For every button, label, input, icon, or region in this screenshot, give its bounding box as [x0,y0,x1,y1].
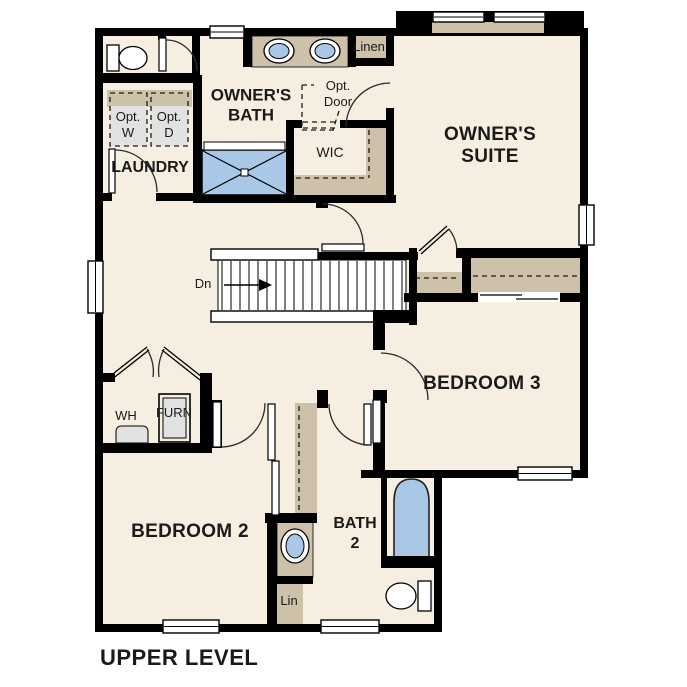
door-leaf-wc [159,38,166,71]
door-leaf-bedroom2 [213,402,221,447]
room-label-bedroom3: BEDROOM 3 [423,373,541,395]
bay-window-sill [432,22,544,33]
sink-bath2 [281,529,309,563]
door-leaf-bedroom3 [373,400,381,443]
label-furnace: FURN [156,405,192,421]
room-label-bedroom2: BEDROOM 2 [131,521,249,543]
stair-railing-lower [211,311,377,322]
label-opt-washer: Opt. W [116,109,141,142]
label-linen: Linen [353,39,385,55]
label-water-heater: WH [115,408,137,424]
toilet-owners-bath [107,45,147,71]
room-label-laundry: LAUNDRY [111,158,189,178]
room-label-bath2: BATH 2 [333,514,376,554]
water-heater [116,426,148,443]
shower [202,142,287,195]
room-label-wic: WIC [316,144,343,160]
page-title: UPPER LEVEL [100,645,258,671]
label-opt-dryer: Opt. D [157,109,182,142]
label-stairs-down: Dn [195,276,212,292]
bathtub [394,479,429,557]
stair-railing-upper [211,249,318,260]
room-label-owners-suite: OWNER'S SUITE [444,124,536,168]
door-leaf-bath2 [364,404,371,445]
bypass-doors-bedroom3-closet [478,292,560,302]
floor-plan: OWNER'S BATH OWNER'S SUITE Linen Opt. Do… [0,0,687,687]
door-leaf-hall [322,244,364,251]
toilet-bath2 [386,581,431,611]
label-lin-closet: Lin [280,593,297,609]
room-label-owners-bath: OWNER'S BATH [211,86,292,127]
shower-glass [204,142,285,150]
label-opt-door: Opt. Door [324,78,352,111]
